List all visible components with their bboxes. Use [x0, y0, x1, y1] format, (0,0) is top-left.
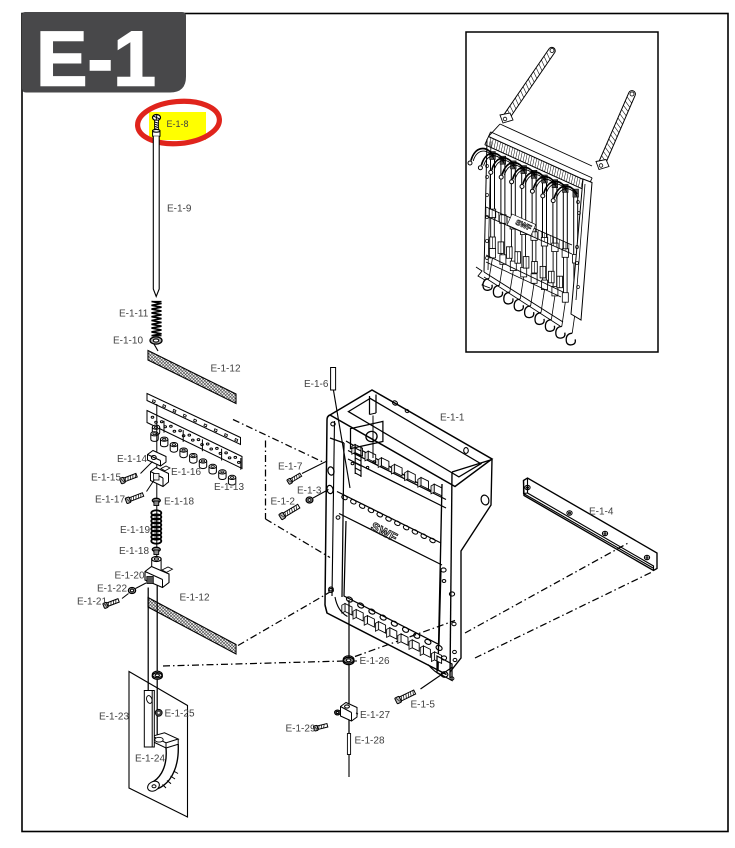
- svg-text:E-1-2: E-1-2: [271, 497, 296, 508]
- svg-text:E-1-18: E-1-18: [164, 497, 194, 508]
- svg-text:E-1-28: E-1-28: [355, 736, 385, 747]
- svg-text:E-1-12: E-1-12: [211, 364, 241, 375]
- svg-text:E-1-16: E-1-16: [171, 467, 201, 478]
- svg-text:E-1-22: E-1-22: [97, 584, 127, 595]
- svg-text:E-1-5: E-1-5: [411, 700, 436, 711]
- svg-text:E-1-9: E-1-9: [167, 204, 192, 215]
- svg-text:E-1-11: E-1-11: [119, 309, 149, 320]
- svg-text:E-1-15: E-1-15: [91, 473, 121, 484]
- svg-text:E-1-26: E-1-26: [360, 656, 390, 667]
- svg-text:E-1-4: E-1-4: [589, 507, 614, 518]
- svg-text:E-1-17: E-1-17: [95, 495, 125, 506]
- svg-text:E-1-12: E-1-12: [180, 593, 210, 604]
- svg-text:E-1-27: E-1-27: [360, 710, 390, 721]
- svg-text:E-1: E-1: [36, 15, 156, 103]
- svg-text:E-1-23: E-1-23: [99, 712, 129, 723]
- svg-text:E-1-7: E-1-7: [278, 462, 303, 473]
- svg-text:E-1-13: E-1-13: [214, 482, 244, 493]
- svg-text:E-1-20: E-1-20: [115, 571, 145, 582]
- svg-text:E-1-6: E-1-6: [304, 379, 329, 390]
- svg-text:E-1-25: E-1-25: [165, 709, 195, 720]
- svg-text:E-1-21: E-1-21: [77, 597, 107, 608]
- svg-text:E-1-29: E-1-29: [286, 724, 316, 735]
- svg-text:E-1-14: E-1-14: [117, 454, 147, 465]
- svg-text:E-1-19: E-1-19: [120, 525, 150, 536]
- svg-text:E-1-24: E-1-24: [135, 754, 165, 765]
- svg-text:E-1-1: E-1-1: [440, 413, 465, 424]
- svg-text:E-1-10: E-1-10: [113, 336, 143, 347]
- svg-text:E-1-8: E-1-8: [167, 119, 189, 129]
- svg-text:E-1-18: E-1-18: [119, 546, 149, 557]
